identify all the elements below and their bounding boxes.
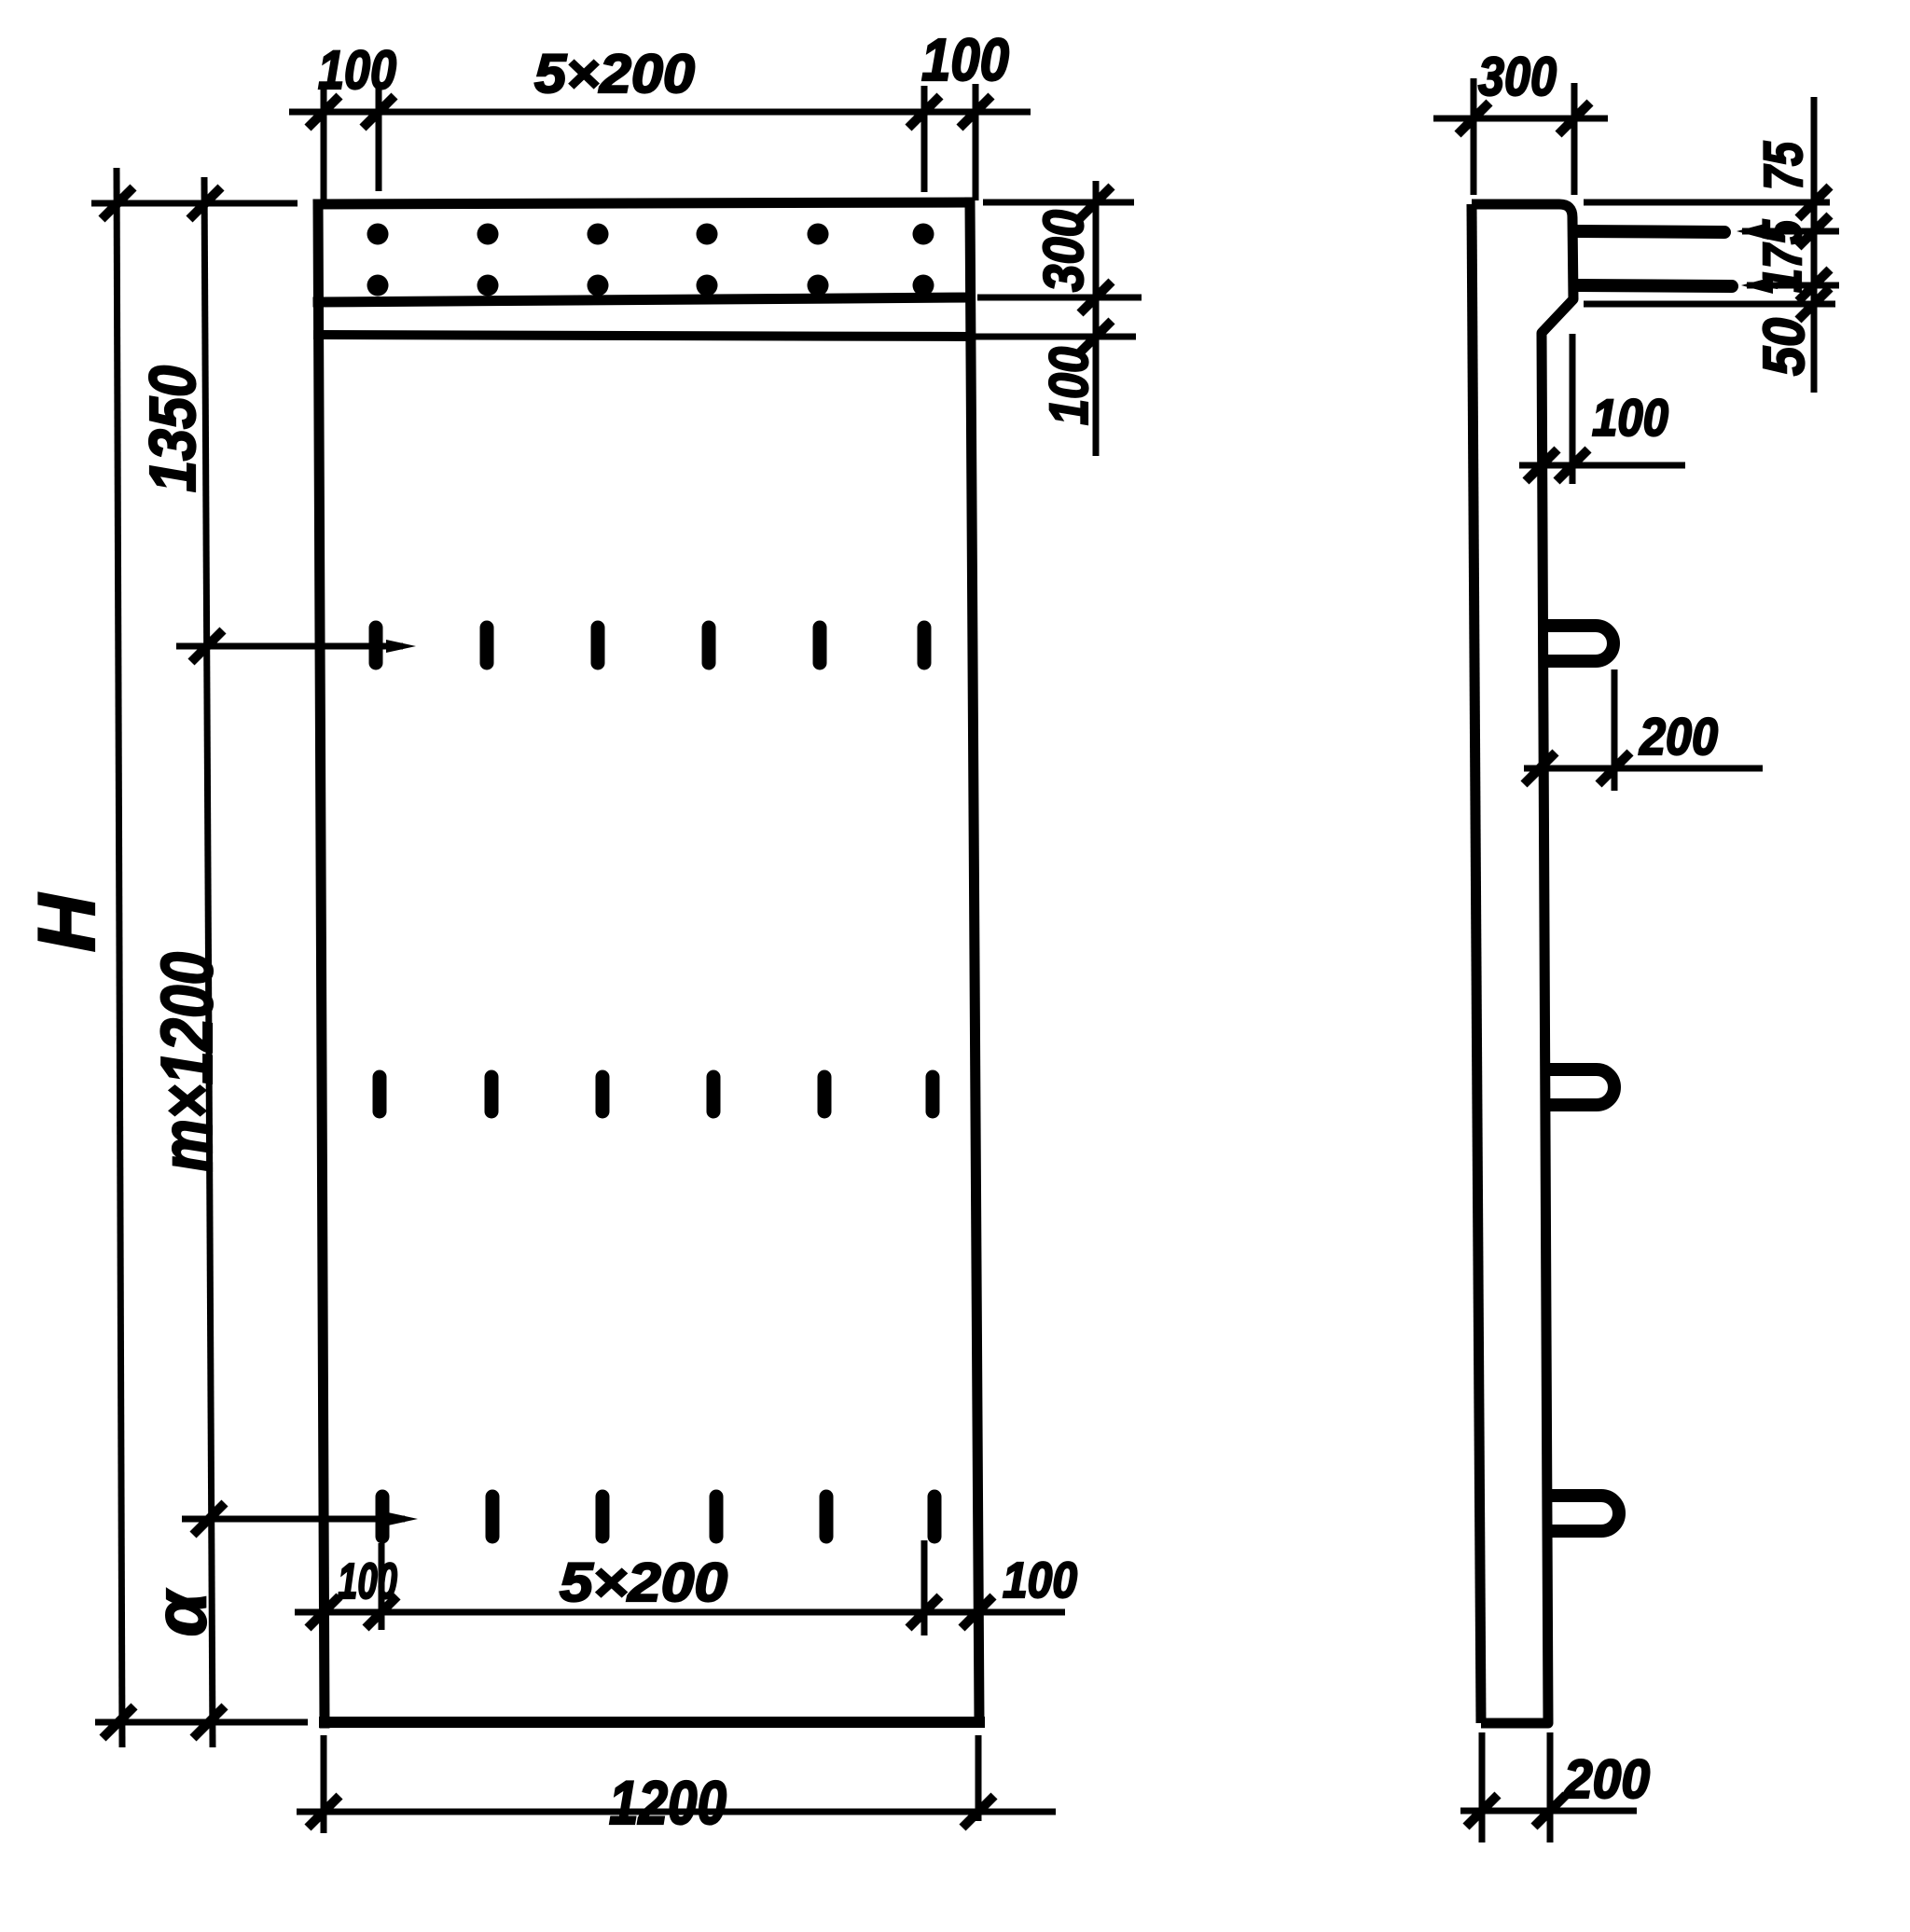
svg-text:1200: 1200 — [609, 1768, 727, 1837]
svg-text:100: 100 — [921, 26, 1009, 93]
svg-text:100: 100 — [318, 40, 396, 101]
svg-text:50: 50 — [1752, 318, 1817, 376]
svg-text:200: 200 — [1563, 1749, 1650, 1810]
svg-text:300: 300 — [1032, 210, 1095, 292]
svg-text:75: 75 — [1753, 141, 1814, 190]
svg-text:5×200: 5×200 — [560, 1552, 727, 1613]
svg-text:100: 100 — [1003, 1552, 1077, 1608]
svg-text:H: H — [22, 892, 112, 952]
svg-text:300: 300 — [1478, 47, 1557, 107]
svg-text:m×1200: m×1200 — [145, 952, 228, 1172]
svg-text:100: 100 — [1039, 347, 1100, 425]
svg-text:175: 175 — [1752, 219, 1813, 293]
svg-text:100: 100 — [1592, 388, 1668, 447]
svg-text:5×200: 5×200 — [534, 44, 695, 104]
svg-text:1350: 1350 — [136, 366, 209, 492]
svg-text:100: 100 — [338, 1553, 397, 1609]
svg-text:200: 200 — [1639, 707, 1718, 766]
svg-text:α: α — [139, 1588, 221, 1636]
